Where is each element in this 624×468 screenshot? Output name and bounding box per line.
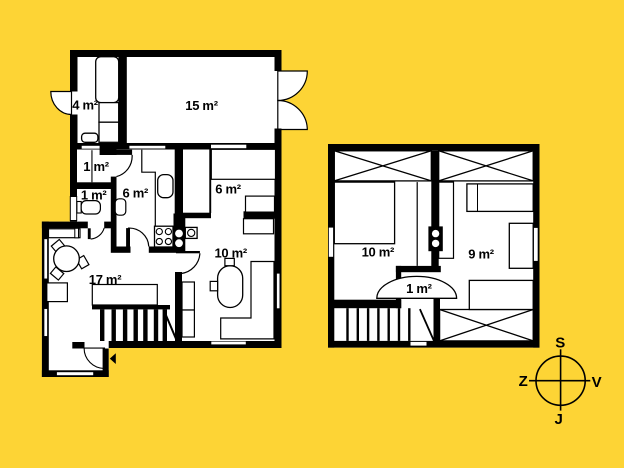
svg-text:17 m²: 17 m² xyxy=(89,272,122,287)
svg-text:6 m²: 6 m² xyxy=(123,186,150,201)
svg-text:1 m²: 1 m² xyxy=(81,188,108,203)
svg-text:15 m²: 15 m² xyxy=(185,98,218,113)
svg-text:10 m²: 10 m² xyxy=(362,244,395,259)
svg-text:1 m²: 1 m² xyxy=(406,281,433,296)
svg-text:4 m²: 4 m² xyxy=(72,98,99,113)
svg-text:J: J xyxy=(555,411,563,428)
svg-text:1 m²: 1 m² xyxy=(83,159,110,174)
svg-text:9 m²: 9 m² xyxy=(468,247,495,262)
svg-text:Z: Z xyxy=(519,373,528,390)
svg-text:V: V xyxy=(592,374,602,391)
svg-text:10 m²: 10 m² xyxy=(214,246,247,261)
svg-text:6 m²: 6 m² xyxy=(215,182,242,197)
svg-text:S: S xyxy=(555,335,565,352)
